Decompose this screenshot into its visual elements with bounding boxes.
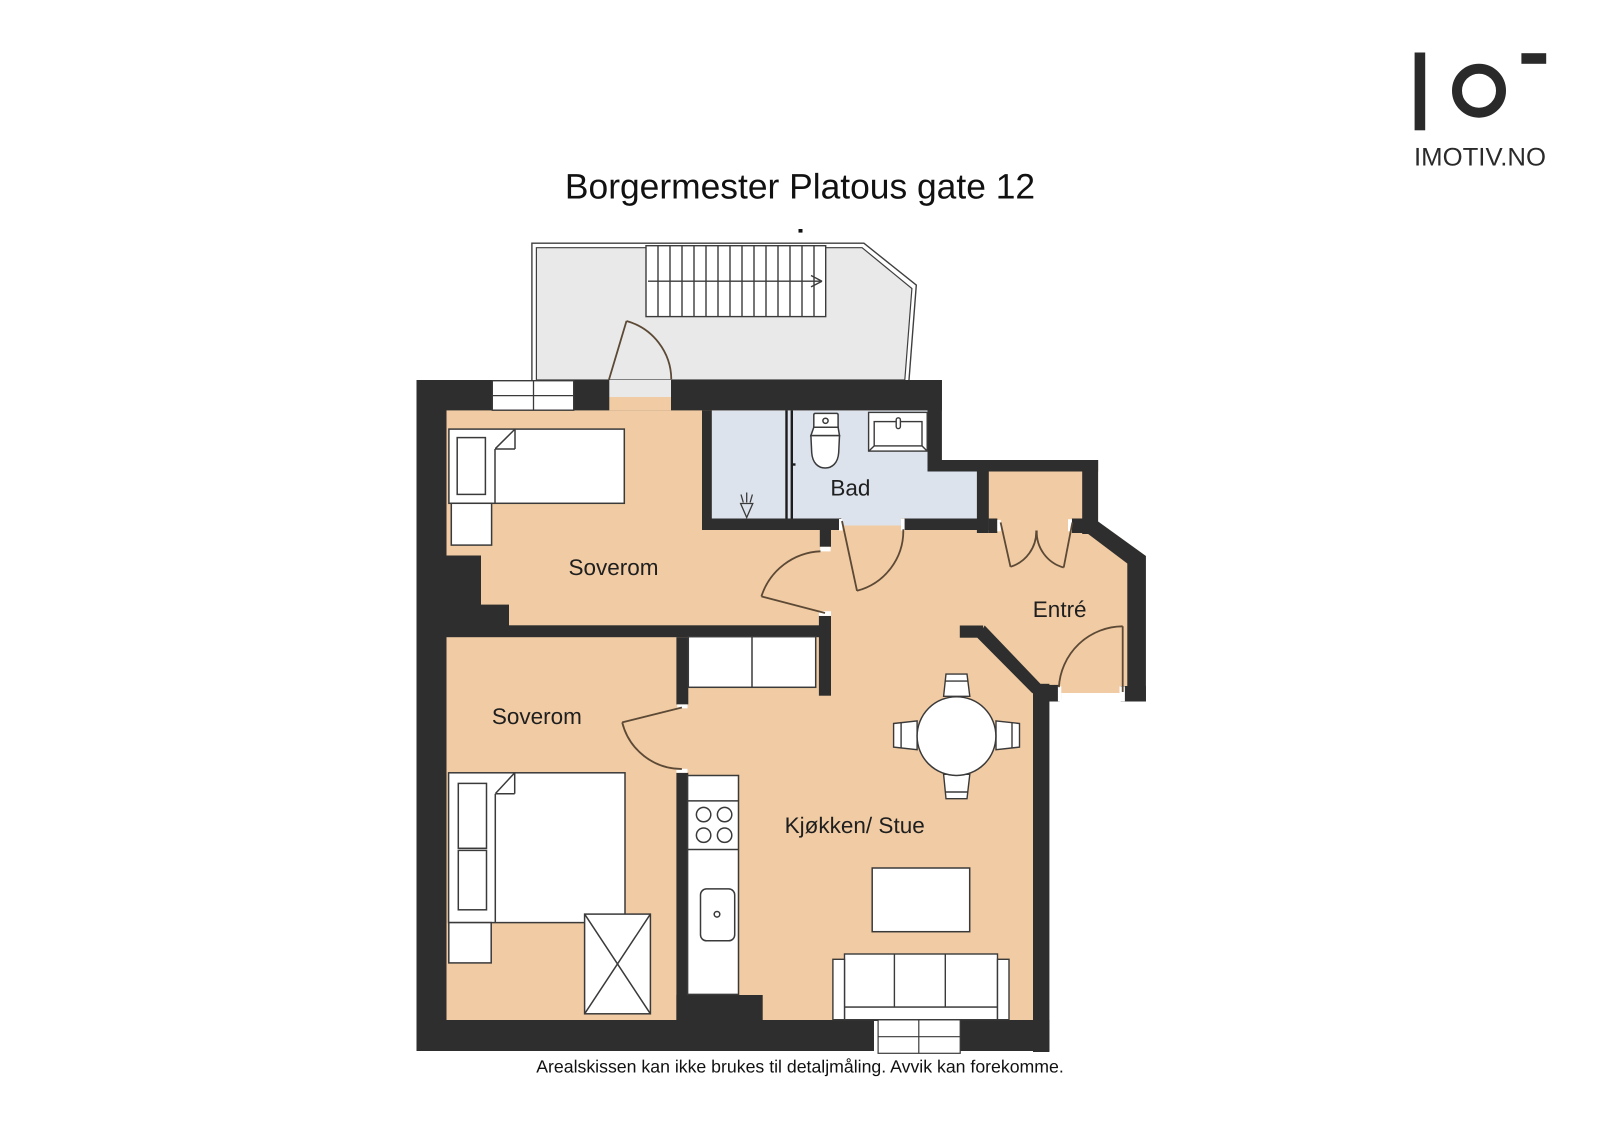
svg-text:Borgermester Platous gate 12: Borgermester Platous gate 12 bbox=[565, 166, 1035, 206]
svg-text:Arealskissen kan ikke brukes t: Arealskissen kan ikke brukes til detaljm… bbox=[536, 1057, 1064, 1077]
svg-text:Kjøkken/ Stue: Kjøkken/ Stue bbox=[785, 813, 925, 838]
svg-text:Soverom: Soverom bbox=[568, 555, 658, 580]
svg-text:IMOTIV.NO: IMOTIV.NO bbox=[1414, 144, 1546, 172]
svg-text:Bad: Bad bbox=[830, 476, 870, 501]
svg-text:Soverom: Soverom bbox=[492, 704, 582, 729]
svg-text:Entré: Entré bbox=[1033, 597, 1087, 622]
